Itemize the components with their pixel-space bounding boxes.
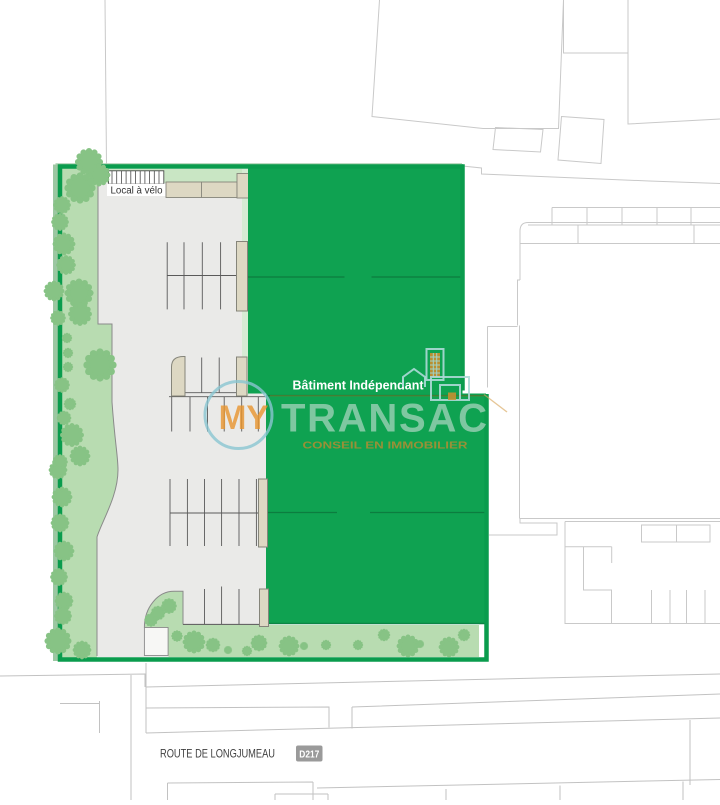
svg-text:D217: D217 [299,750,319,761]
svg-text:Bâtiment Indépendant: Bâtiment Indépendant [293,377,425,392]
svg-text:ROUTE DE LONGJUMEAU: ROUTE DE LONGJUMEAU [160,747,275,761]
svg-text:CONSEIL EN IMMOBILIER: CONSEIL EN IMMOBILIER [303,440,469,452]
svg-text:Local à vélo: Local à vélo [111,185,163,196]
svg-text:MY: MY [219,399,269,437]
svg-text:TRANSAC: TRANSAC [281,397,487,441]
